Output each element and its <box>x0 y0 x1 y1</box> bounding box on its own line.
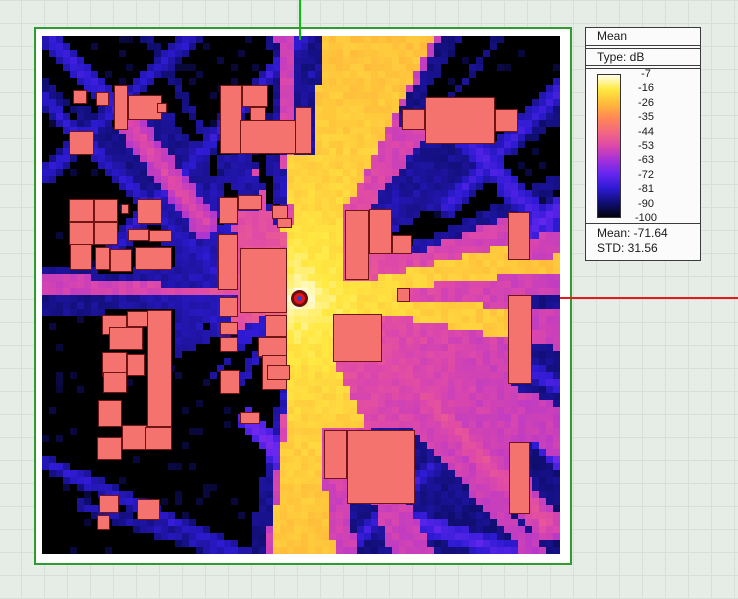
legend-type-label: Type: dB <box>586 49 700 65</box>
crosshair-horizontal-line <box>560 297 738 299</box>
transmitter-center-dot <box>297 296 302 301</box>
colorbar-tick: -16 <box>626 82 666 94</box>
legend-panel: Mean Type: dB -7-16-26-35-44-53-63-72-81… <box>585 27 701 261</box>
legend-std-value: STD: 31.56 <box>597 241 700 256</box>
legend-mean-value: Mean: -71.64 <box>597 226 700 241</box>
colorbar-tick: -44 <box>626 126 666 138</box>
colorbar-tick: -35 <box>626 111 666 123</box>
app-canvas: Mean Type: dB -7-16-26-35-44-53-63-72-81… <box>0 0 738 599</box>
crosshair-vertical-line <box>299 0 301 40</box>
legend-stats: Mean: -71.64 STD: 31.56 <box>586 223 700 260</box>
transmitter-marker[interactable] <box>291 290 308 307</box>
colorbar-tick: -90 <box>626 198 666 210</box>
legend-title: Mean <box>586 28 700 45</box>
colorbar-tick: -53 <box>626 140 666 152</box>
colorbar-tick: -100 <box>626 212 666 224</box>
legend-colorbar-section: -7-16-26-35-44-53-63-72-81-90-100 <box>586 69 700 223</box>
colorbar-tick: -63 <box>626 154 666 166</box>
colorbar-tick: -81 <box>626 183 666 195</box>
colorbar-tick: -26 <box>626 97 666 109</box>
colorbar-tick: -7 <box>626 68 666 80</box>
colorbar-gradient <box>597 74 621 218</box>
colorbar-tick-labels: -7-16-26-35-44-53-63-72-81-90-100 <box>626 68 666 224</box>
colorbar-tick: -72 <box>626 169 666 181</box>
